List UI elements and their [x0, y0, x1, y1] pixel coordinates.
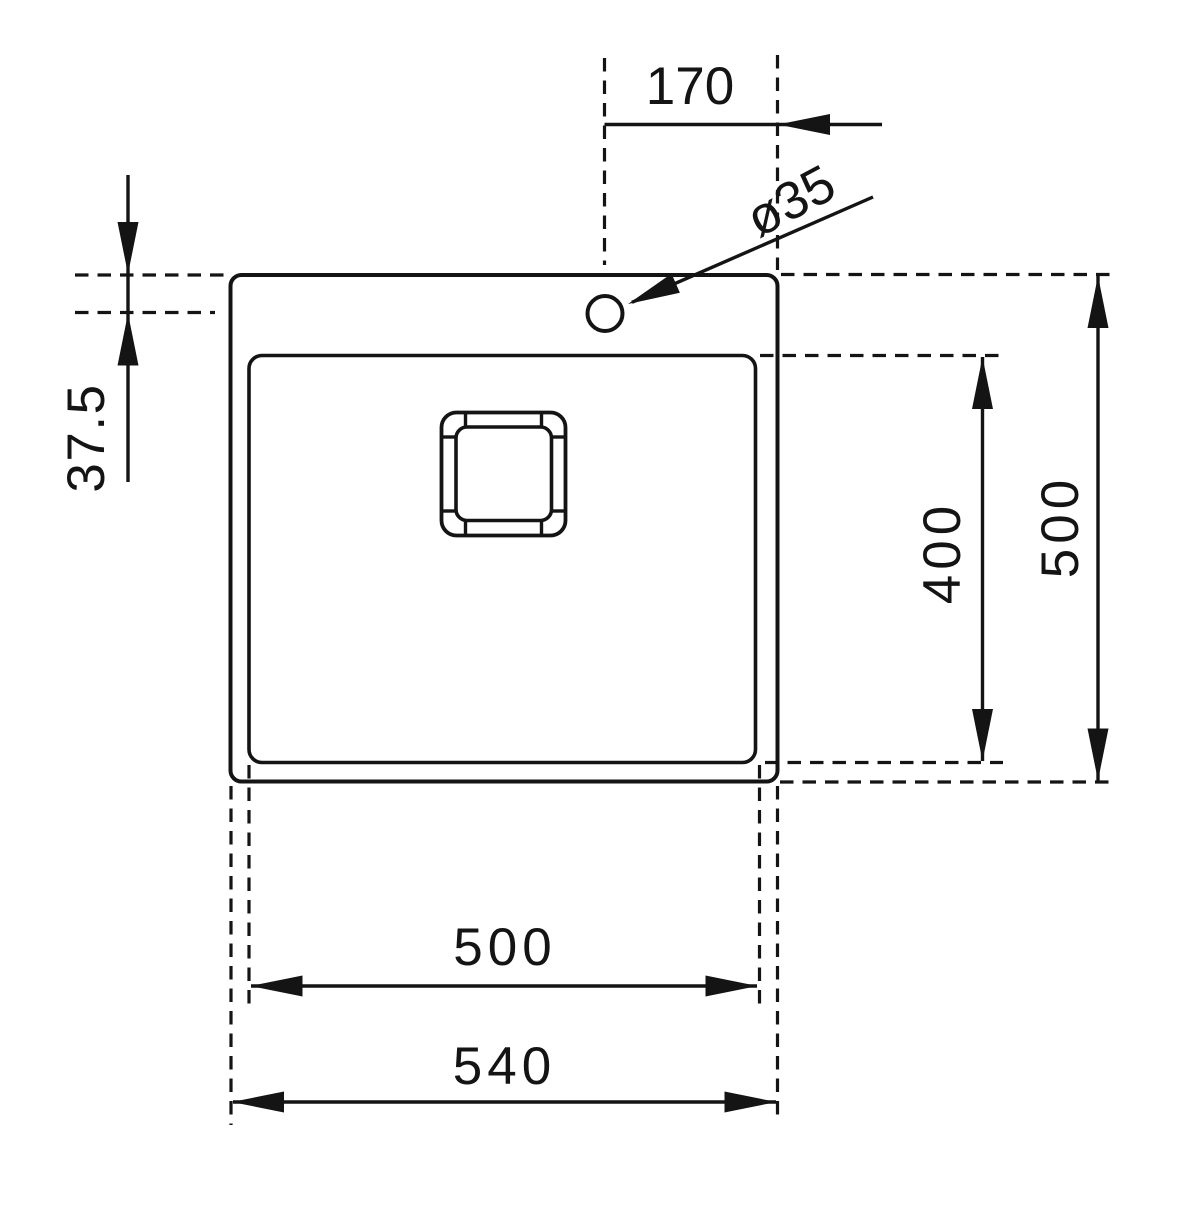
- svg-text:500: 500: [453, 918, 556, 977]
- svg-text:500: 500: [1031, 475, 1090, 578]
- svg-text:37.5: 37.5: [57, 383, 116, 492]
- svg-text:400: 400: [913, 501, 972, 604]
- svg-text:170: 170: [646, 57, 734, 116]
- svg-text:540: 540: [453, 1037, 556, 1096]
